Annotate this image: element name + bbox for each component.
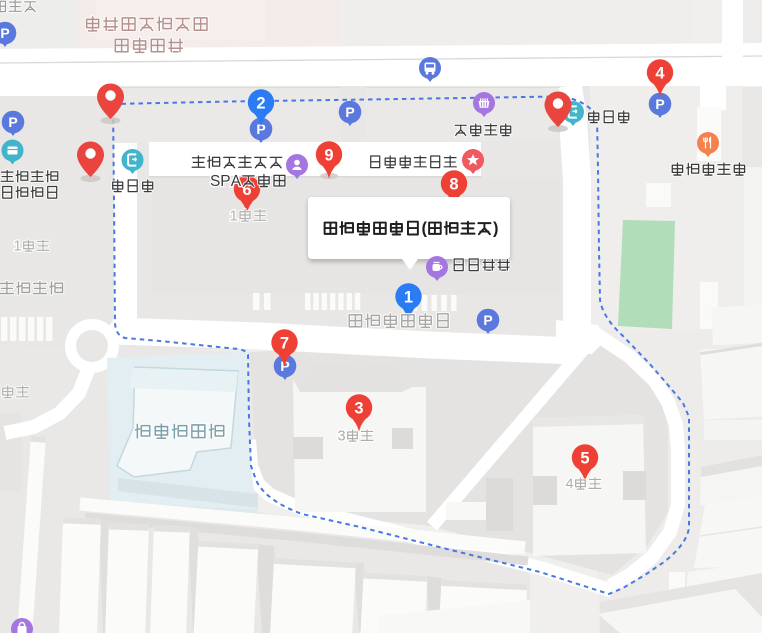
svg-text:1: 1 xyxy=(14,239,22,255)
svg-text:9: 9 xyxy=(324,146,333,164)
svg-text:8: 8 xyxy=(449,175,458,193)
svg-text:4: 4 xyxy=(566,477,574,493)
svg-text:1: 1 xyxy=(230,207,238,224)
svg-text:P: P xyxy=(655,96,664,112)
svg-text:): ) xyxy=(493,220,499,238)
svg-text:P: P xyxy=(483,312,492,328)
svg-text:P: P xyxy=(345,104,354,120)
svg-text:P: P xyxy=(220,173,230,190)
svg-text:P: P xyxy=(0,25,9,41)
svg-text:P: P xyxy=(8,114,17,130)
svg-text:A: A xyxy=(231,173,242,190)
svg-text:7: 7 xyxy=(280,334,289,352)
svg-text:5: 5 xyxy=(580,449,589,467)
svg-text:2: 2 xyxy=(256,94,265,112)
svg-text:(: ( xyxy=(422,220,428,238)
svg-text:S: S xyxy=(210,173,220,190)
svg-text:3: 3 xyxy=(354,399,363,417)
svg-text:3: 3 xyxy=(338,429,346,445)
svg-text:4: 4 xyxy=(655,64,665,82)
svg-text:1: 1 xyxy=(404,288,413,306)
